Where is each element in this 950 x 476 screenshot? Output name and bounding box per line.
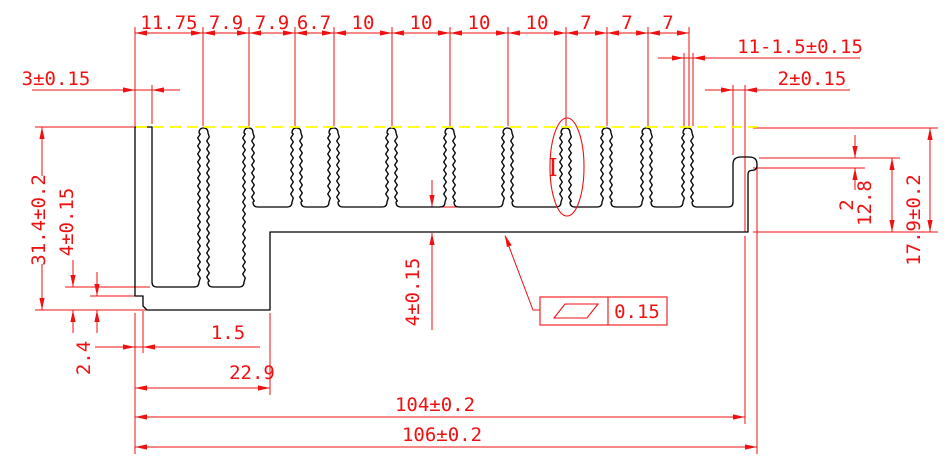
dimension-arrowhead: [607, 30, 619, 35]
dimension-arrowhead: [392, 30, 404, 35]
dim-text-width_overall: 106±0.2: [402, 424, 482, 446]
dimension-arrowhead: [143, 344, 155, 349]
dim-text-7: 10: [526, 12, 549, 34]
drawing-canvas: 11.757.97.96.7101010107773±0.1511-1.5±0.…: [0, 0, 950, 476]
dimension-arrowhead: [39, 298, 44, 310]
dimension-arrowhead: [852, 146, 857, 158]
dimension-arrowhead: [927, 128, 932, 140]
dim-text-fin_spec: 11-1.5±0.15: [737, 36, 863, 58]
dim-text-6: 10: [468, 12, 491, 34]
flatness-value: 0.15: [614, 301, 660, 323]
dimension-arrowhead: [852, 168, 857, 180]
dimension-arrowhead: [94, 310, 99, 322]
dimension-arrowhead: [672, 55, 684, 60]
profile-outer-contour: [135, 127, 748, 310]
technical-drawing: 11.757.97.96.7101010107773±0.1511-1.5±0.…: [0, 0, 950, 476]
dimension-arrowhead: [380, 30, 392, 35]
dimension-arrowhead: [135, 444, 147, 449]
dim-text-9: 7: [621, 12, 632, 34]
dimension-arrowhead: [123, 344, 135, 349]
dimension-arrowhead: [721, 87, 733, 92]
flatness-symbol-icon: [554, 304, 598, 318]
dimension-arrowhead: [429, 195, 434, 207]
dimension-arrowhead: [508, 30, 520, 35]
dim-text-8: 7: [580, 12, 591, 34]
dimension-arrowhead: [429, 233, 434, 245]
dimension-arrowhead: [745, 444, 757, 449]
dimension-arrowhead: [677, 30, 689, 35]
heatsink-profile-outline: [135, 127, 757, 310]
dimension-arrowhead: [496, 30, 508, 35]
dim-text-0: 11.75: [140, 12, 197, 34]
flatness-callout: 0.15: [505, 236, 667, 325]
dimension-arrowhead: [123, 87, 135, 92]
dimension-annotations: 11.757.97.96.7101010107773±0.1511-1.5±0.…: [22, 12, 938, 454]
dim-text-left_base_thickness: 4±0.15: [56, 188, 78, 257]
dim-text-3: 6.7: [297, 12, 331, 34]
dimension-arrowhead: [70, 275, 75, 287]
dimension-arrowhead: [595, 30, 607, 35]
dim-text-5: 10: [410, 12, 433, 34]
dimension-arrowhead: [334, 30, 346, 35]
dim-text-lip_thickness: 2±0.15: [778, 68, 847, 90]
dim-text-2: 7.9: [255, 12, 289, 34]
dimension-arrowhead: [554, 30, 566, 35]
dim-text-4: 10: [352, 12, 375, 34]
dim-text-width_inner: 104±0.2: [395, 394, 475, 416]
dimension-arrowhead: [135, 414, 147, 419]
dim-text-overall_height: 31.4±0.2: [28, 174, 50, 266]
dimension-arrowhead: [927, 220, 932, 232]
dimension-arrowhead: [693, 55, 705, 60]
dim-text-wall_thickness: 3±0.15: [22, 68, 91, 90]
dimension-arrowhead: [889, 220, 894, 232]
dimension-arrowhead: [733, 414, 745, 419]
dim-text-right_height: 17.9±0.2: [903, 174, 925, 266]
dim-text-left_width: 22.9: [229, 362, 275, 384]
dimension-arrowhead: [438, 30, 450, 35]
dim-text-notch_height: 2.4: [73, 341, 95, 375]
dimension-arrowhead: [258, 385, 270, 390]
dimension-arrowhead: [648, 30, 660, 35]
detail-label: I: [548, 154, 557, 182]
dim-text-10: 7: [662, 12, 673, 34]
leader-line: [505, 236, 540, 310]
dim-text-notch_width: 1.5: [211, 322, 245, 344]
dimension-arrowhead: [135, 385, 147, 390]
dimension-arrowhead: [566, 30, 578, 35]
dimension-arrowhead: [745, 87, 757, 92]
dimension-arrowhead: [152, 87, 164, 92]
dimension-arrowhead: [636, 30, 648, 35]
dimension-arrowhead: [70, 310, 75, 322]
dimension-arrowhead: [450, 30, 462, 35]
dimension-arrowhead: [94, 284, 99, 296]
dim-text-lip_step: 2: [836, 199, 858, 210]
dimension-arrowhead: [889, 158, 894, 170]
dim-text-base_thickness: 4±0.15: [402, 258, 424, 327]
dim-text-1: 7.9: [209, 12, 243, 34]
dimension-arrowhead: [39, 127, 44, 139]
